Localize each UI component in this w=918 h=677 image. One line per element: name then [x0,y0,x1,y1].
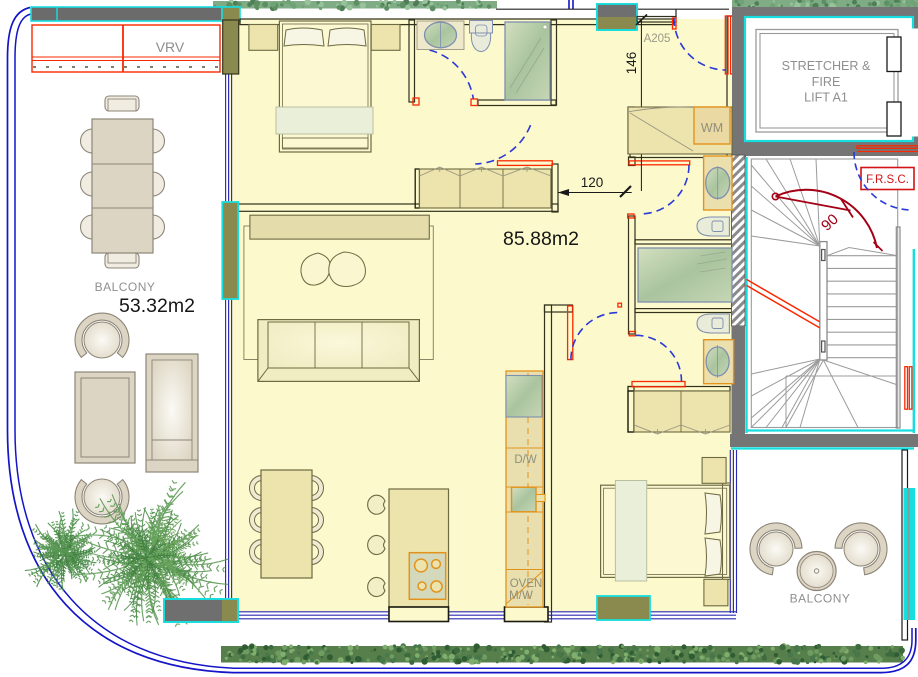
svg-text:BALCONY: BALCONY [790,592,851,606]
svg-text:STRETCHER &: STRETCHER & [782,59,871,73]
svg-text:A205: A205 [644,33,671,45]
svg-text:FIRE: FIRE [812,75,841,89]
svg-text:85.88m2: 85.88m2 [503,228,579,250]
svg-text:53.32m2: 53.32m2 [119,295,195,317]
svg-text:M/W: M/W [509,590,533,602]
svg-text:F.R.S.C.: F.R.S.C. [866,174,909,186]
svg-text:VRV: VRV [156,39,185,55]
svg-text:BALCONY: BALCONY [95,280,156,294]
svg-text:146: 146 [624,52,639,75]
svg-text:OVEN: OVEN [510,578,543,590]
svg-text:LIFT A1: LIFT A1 [804,91,848,105]
svg-text:D/W: D/W [514,454,537,466]
svg-text:WM: WM [701,121,723,135]
svg-text:120: 120 [581,175,604,190]
